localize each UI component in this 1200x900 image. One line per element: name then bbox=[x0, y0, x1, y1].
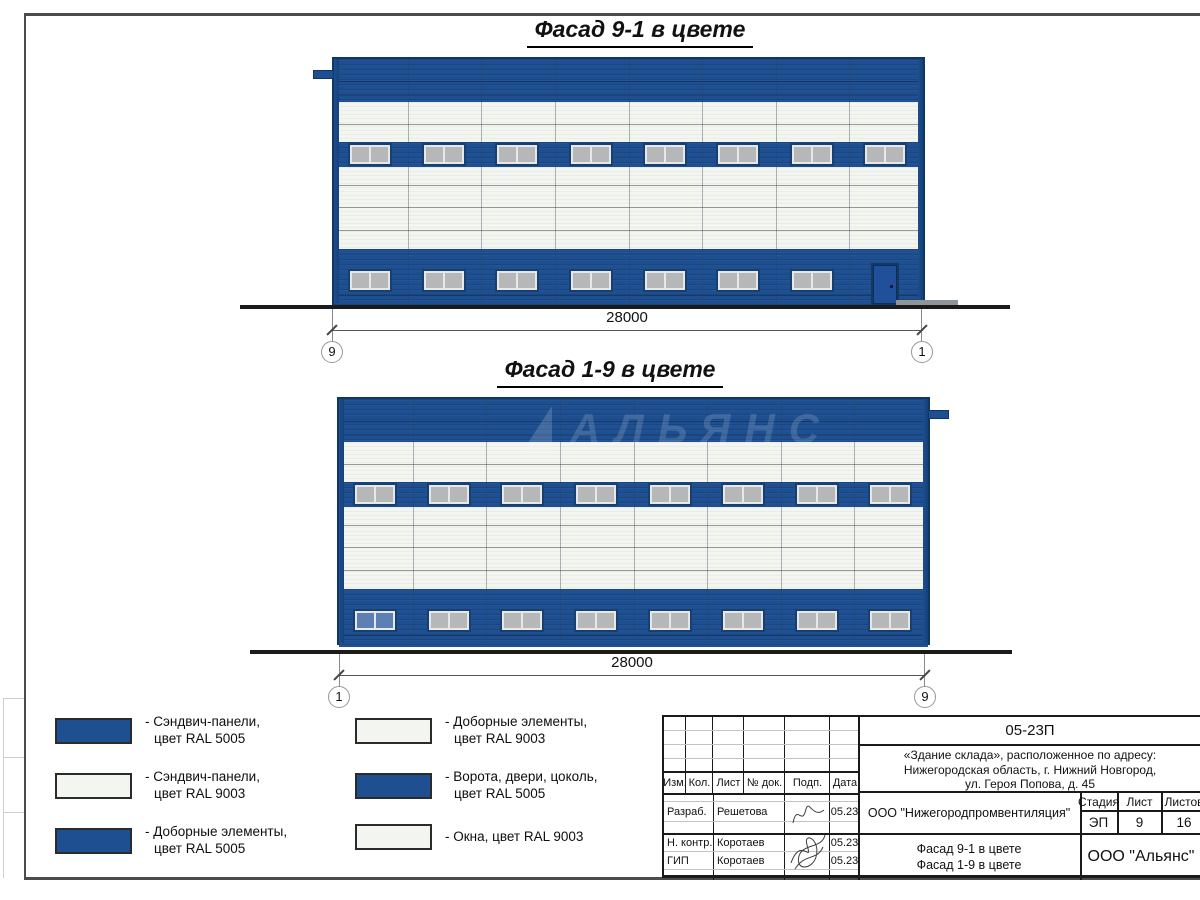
panel-joint bbox=[481, 59, 482, 303]
window bbox=[648, 483, 692, 506]
sheet-frame-left bbox=[24, 13, 26, 880]
window bbox=[495, 269, 539, 292]
dimension-line bbox=[332, 330, 922, 331]
legend-swatch-white bbox=[355, 824, 432, 850]
titleblock-cell: Н. контр. bbox=[667, 834, 714, 852]
panel-joint bbox=[854, 399, 855, 643]
panel-joint bbox=[702, 59, 703, 303]
corner-trim bbox=[918, 59, 923, 303]
dimension-line bbox=[339, 675, 925, 676]
object-description: «Здание склада», расположенное по адресу… bbox=[858, 746, 1200, 791]
window bbox=[348, 269, 392, 292]
corner-trim bbox=[339, 399, 344, 643]
dimension-value: 28000 bbox=[332, 309, 922, 326]
dimension-value: 28000 bbox=[339, 654, 925, 671]
window bbox=[868, 483, 912, 506]
axis-marker: 1 bbox=[328, 686, 350, 708]
window bbox=[348, 143, 392, 166]
dimension-facade-9-1: 28000 9 1 bbox=[332, 306, 922, 368]
titleblock-cell: ГИП bbox=[667, 852, 714, 870]
entrance-door bbox=[871, 263, 899, 306]
stage-value: ЭП bbox=[1080, 812, 1117, 833]
legend-swatch-blue bbox=[355, 773, 432, 799]
panel-joint bbox=[486, 399, 487, 643]
legend-label: - Доборные элементы,цвет RAL 9003 bbox=[445, 714, 587, 747]
sheet-content-title: Фасад 9-1 в цвете Фасад 1-9 в цвете bbox=[858, 835, 1080, 878]
legend-swatch-blue bbox=[55, 718, 132, 744]
legend-item: - Доборные элементы,цвет RAL 9003 bbox=[355, 714, 587, 747]
window bbox=[353, 483, 397, 506]
legend-swatch-white bbox=[55, 773, 132, 799]
window bbox=[569, 269, 613, 292]
legend-label: - Окна, цвет RAL 9003 bbox=[445, 829, 583, 846]
margin-stamp-line bbox=[3, 812, 24, 813]
window bbox=[574, 609, 618, 632]
panel-joint bbox=[560, 399, 561, 643]
window bbox=[721, 609, 765, 632]
panel-joint bbox=[776, 59, 777, 303]
panel-joint bbox=[555, 59, 556, 303]
legend-item: - Сэндвич-панели,цвет RAL 5005 bbox=[55, 714, 260, 747]
window bbox=[790, 269, 834, 292]
window bbox=[790, 143, 834, 166]
titleblock-col-header: Лист bbox=[713, 771, 744, 794]
sheet-title-line: Фасад 1-9 в цвете bbox=[917, 857, 1022, 873]
legend-label: - Сэндвич-панели,цвет RAL 5005 bbox=[145, 714, 260, 747]
titleblock-header-row: Изм.Кол.Лист№ док.Подп.Дата bbox=[664, 771, 860, 794]
panel-joint bbox=[707, 399, 708, 643]
legend-item: - Сэндвич-панели,цвет RAL 9003 bbox=[55, 769, 260, 802]
legend-label: - Сэндвич-панели,цвет RAL 9003 bbox=[145, 769, 260, 802]
object-line: Нижегородская область, г. Нижний Новгоро… bbox=[904, 763, 1156, 778]
titleblock-cell: 05.23 bbox=[830, 802, 859, 822]
legend-label: - Ворота, двери, цоколь,цвет RAL 5005 bbox=[445, 769, 598, 802]
corner-trim bbox=[923, 399, 928, 643]
panel-joint bbox=[413, 399, 414, 643]
titleblock-cell: 05.23 bbox=[830, 834, 859, 852]
window bbox=[716, 143, 760, 166]
panel-joint bbox=[781, 399, 782, 643]
window bbox=[716, 269, 760, 292]
design-company: ООО "Нижегородпромвентиляция" bbox=[858, 793, 1080, 833]
window bbox=[795, 609, 839, 632]
legend-swatch-blue bbox=[55, 828, 132, 854]
axis-marker: 9 bbox=[914, 686, 936, 708]
panel-joint bbox=[629, 59, 630, 303]
object-line: «Здание склада», расположенное по адресу… bbox=[904, 748, 1156, 763]
titleblock-col-header: Подп. bbox=[785, 771, 830, 794]
facade-9-1-title: Фасад 9-1 в цвете bbox=[420, 16, 860, 48]
sheet-label: Лист bbox=[1118, 793, 1161, 811]
axis-marker: 1 bbox=[911, 341, 933, 363]
window bbox=[422, 143, 466, 166]
client-organization: ООО "Альянс" bbox=[1080, 835, 1200, 878]
window bbox=[495, 143, 539, 166]
legend-item: - Ворота, двери, цоколь,цвет RAL 5005 bbox=[355, 769, 598, 802]
titleblock-col-header: Изм. bbox=[664, 771, 686, 794]
window bbox=[427, 483, 471, 506]
window bbox=[569, 143, 613, 166]
panel-joint bbox=[408, 59, 409, 303]
window bbox=[574, 483, 618, 506]
sheets-value: 16 bbox=[1162, 812, 1200, 833]
window bbox=[427, 609, 471, 632]
roof-tab bbox=[928, 410, 949, 419]
corner-trim bbox=[334, 59, 339, 303]
titleblock-col-header: Дата bbox=[830, 771, 860, 794]
stage-label: Стадия bbox=[1080, 793, 1117, 811]
roof-tab bbox=[313, 70, 334, 79]
margin-stamp-line bbox=[3, 757, 24, 758]
object-line: ул. Героя Попова, д. 45 bbox=[965, 777, 1095, 792]
window bbox=[500, 483, 544, 506]
window bbox=[795, 483, 839, 506]
titleblock-cell: Разраб. bbox=[667, 802, 714, 822]
window bbox=[863, 143, 907, 166]
legend-item: - Окна, цвет RAL 9003 bbox=[355, 824, 583, 850]
sheet-title-line: Фасад 9-1 в цвете bbox=[917, 841, 1022, 857]
facade-9-1-drawing bbox=[332, 57, 925, 305]
margin-stamp-line bbox=[3, 698, 4, 878]
drawing-sheet: Фасад 9-1 в цвете Фасад 1-9 в цвете АЛЬЯ… bbox=[0, 0, 1200, 900]
margin-stamp-line bbox=[3, 698, 24, 699]
title-block: Изм.Кол.Лист№ док.Подп.Дата 05-23П «Здан… bbox=[662, 715, 1200, 878]
window bbox=[868, 609, 912, 632]
titleblock-cell: Коротаев bbox=[717, 834, 783, 852]
titleblock-cell: Решетова bbox=[717, 802, 783, 822]
sheets-label: Листов bbox=[1162, 793, 1200, 811]
panel-joint bbox=[849, 59, 850, 303]
titleblock-cell: Коротаев bbox=[717, 852, 783, 870]
titleblock-cell: 05.23 bbox=[830, 852, 859, 870]
window bbox=[643, 269, 687, 292]
document-number: 05-23П bbox=[858, 717, 1200, 744]
ground-line bbox=[240, 305, 1010, 309]
window bbox=[643, 143, 687, 166]
panel-joint bbox=[634, 399, 635, 643]
titleblock-col-header: № док. bbox=[744, 771, 785, 794]
window-blue bbox=[353, 609, 397, 632]
ground-line bbox=[250, 650, 1012, 654]
axis-marker: 9 bbox=[321, 341, 343, 363]
window bbox=[500, 609, 544, 632]
window bbox=[648, 609, 692, 632]
dimension-facade-1-9: 28000 1 9 bbox=[339, 651, 925, 713]
window bbox=[721, 483, 765, 506]
window bbox=[422, 269, 466, 292]
legend-label: - Доборные элементы,цвет RAL 5005 bbox=[145, 824, 287, 857]
signatures bbox=[785, 797, 829, 877]
legend-item: - Доборные элементы,цвет RAL 5005 bbox=[55, 824, 287, 857]
sheet-value: 9 bbox=[1118, 812, 1161, 833]
titleblock-col-header: Кол. bbox=[686, 771, 713, 794]
facade-1-9-drawing bbox=[337, 397, 930, 645]
legend-swatch-white bbox=[355, 718, 432, 744]
